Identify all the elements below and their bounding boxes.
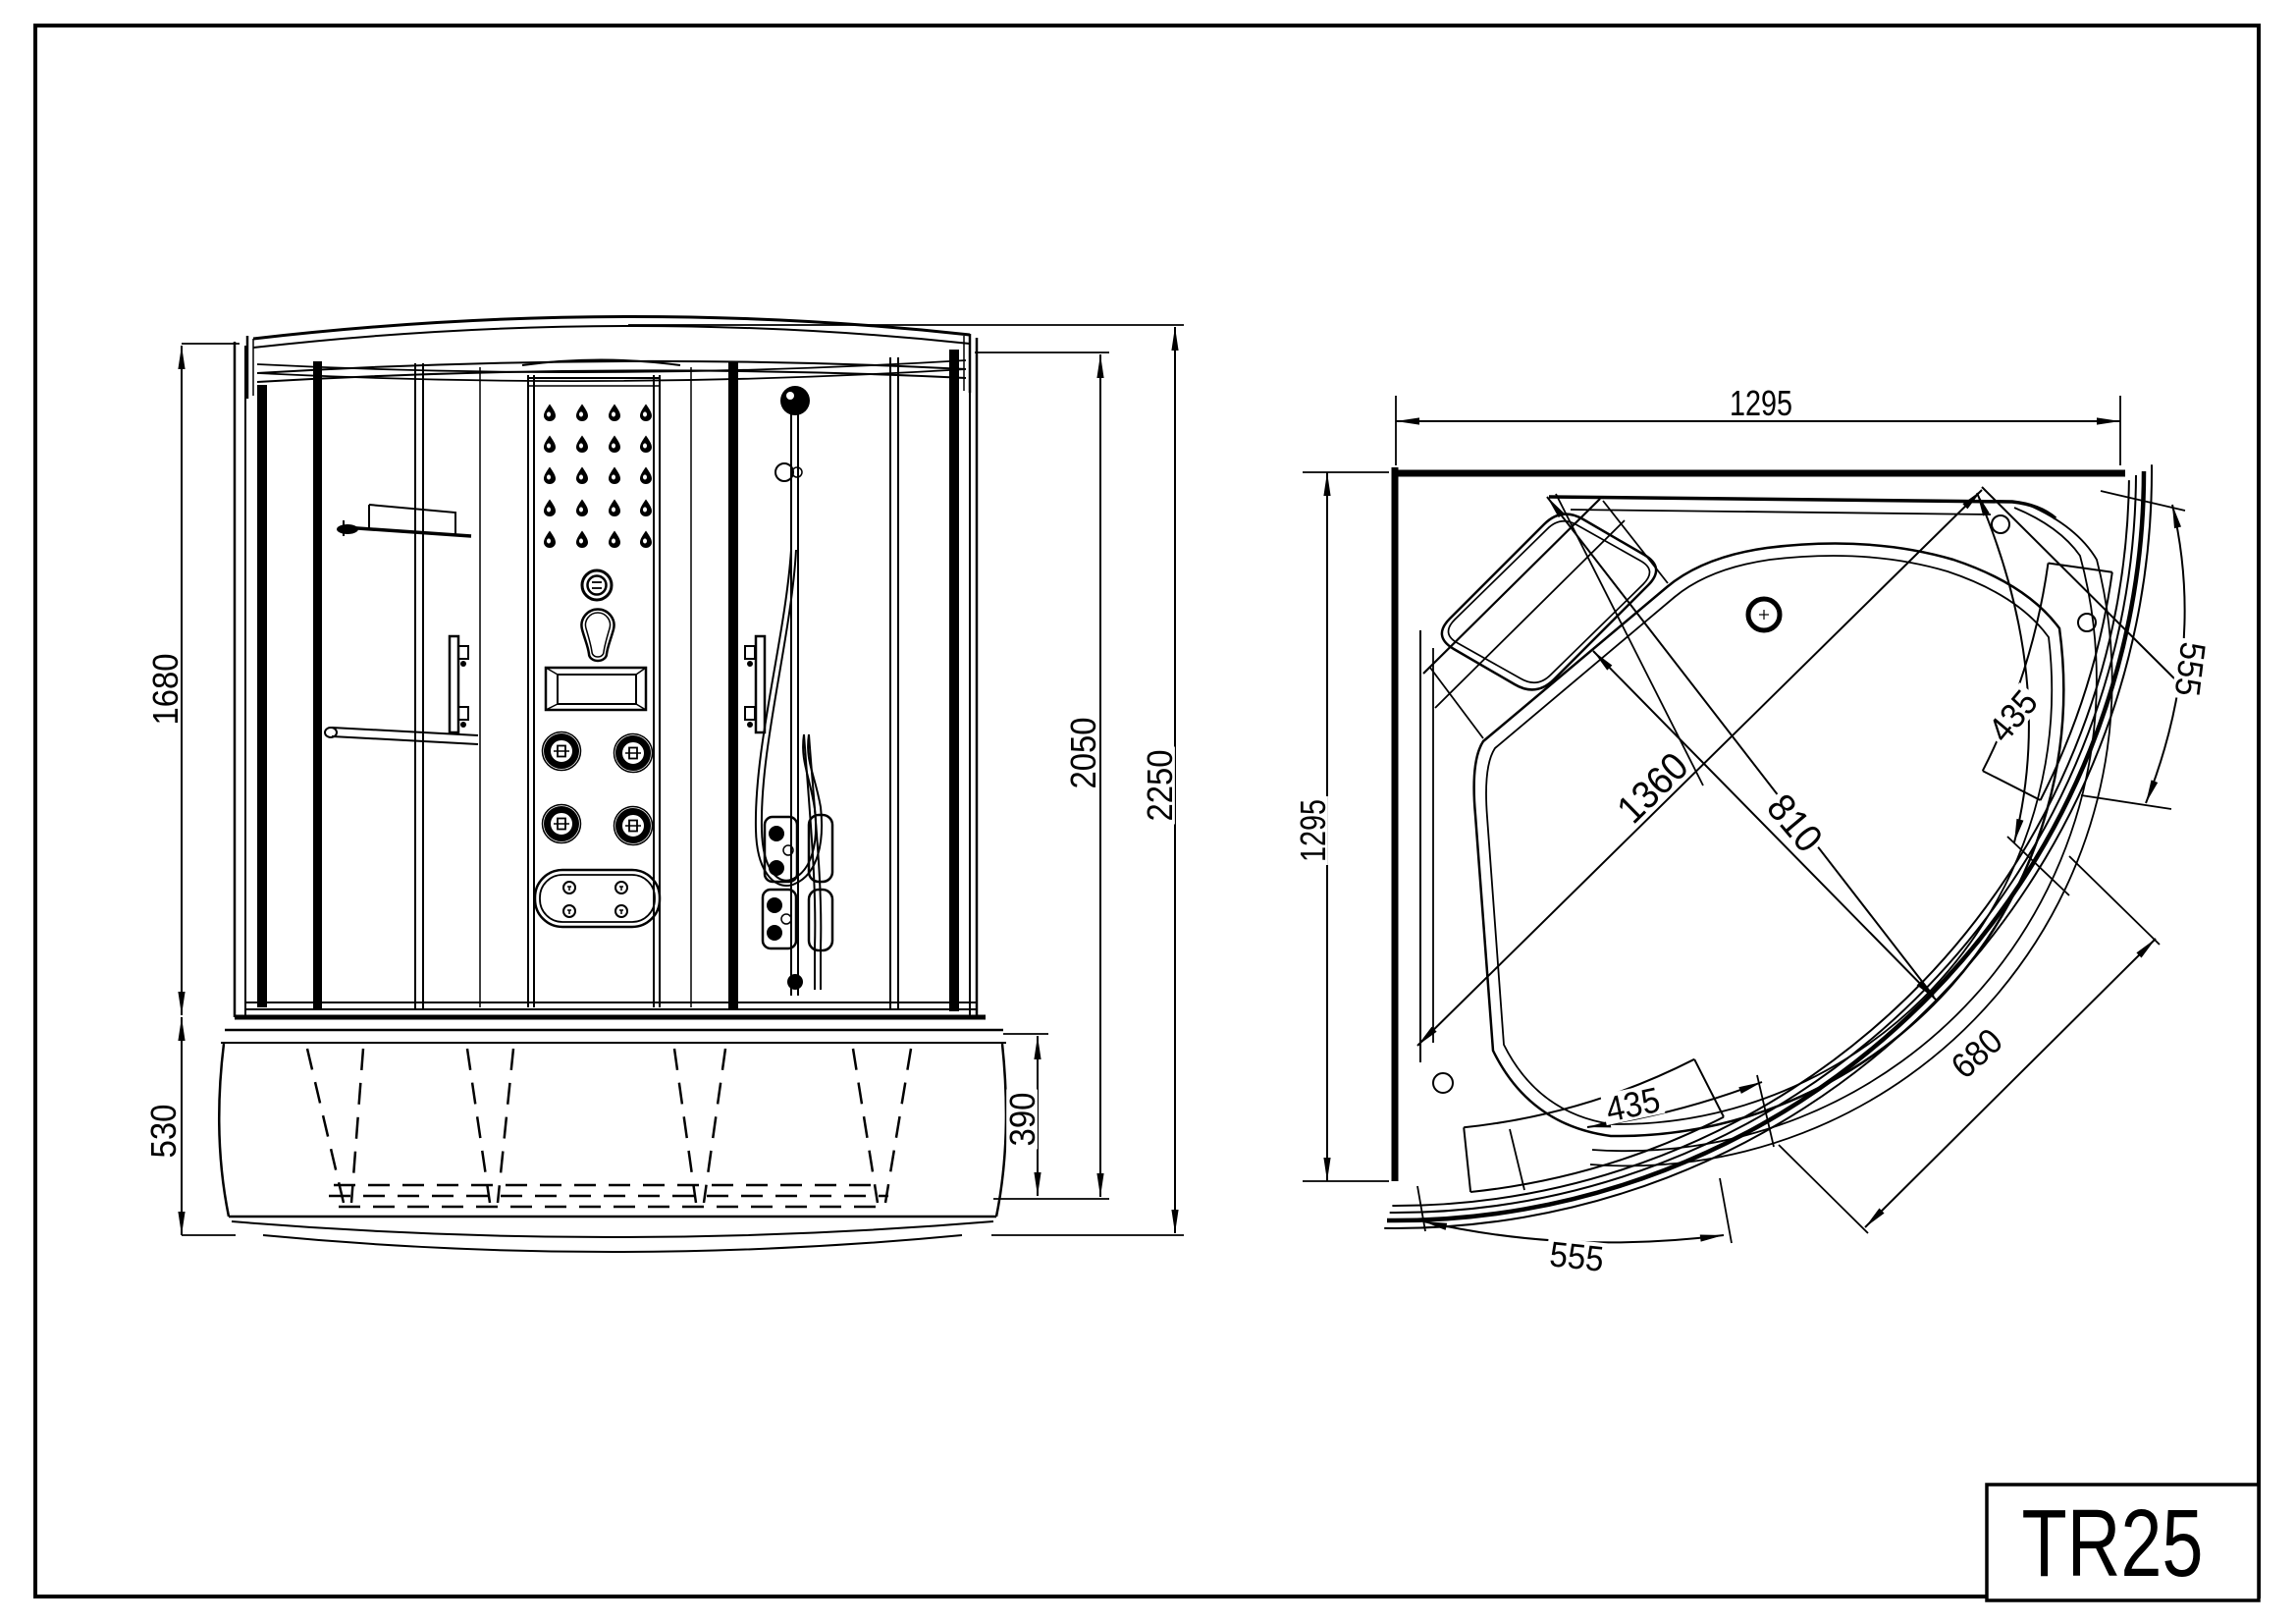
svg-text:530: 530 bbox=[143, 1105, 184, 1159]
svg-text:1295: 1295 bbox=[1730, 383, 1792, 423]
svg-text:555: 555 bbox=[2167, 640, 2214, 699]
svg-text:2250: 2250 bbox=[1140, 750, 1180, 822]
svg-text:1680: 1680 bbox=[145, 654, 186, 726]
svg-text:TR25: TR25 bbox=[2022, 1489, 2204, 1597]
svg-text:555: 555 bbox=[1548, 1233, 1606, 1279]
svg-text:2050: 2050 bbox=[1063, 718, 1103, 789]
svg-text:1295: 1295 bbox=[1293, 799, 1333, 862]
svg-text:390: 390 bbox=[1002, 1093, 1042, 1147]
